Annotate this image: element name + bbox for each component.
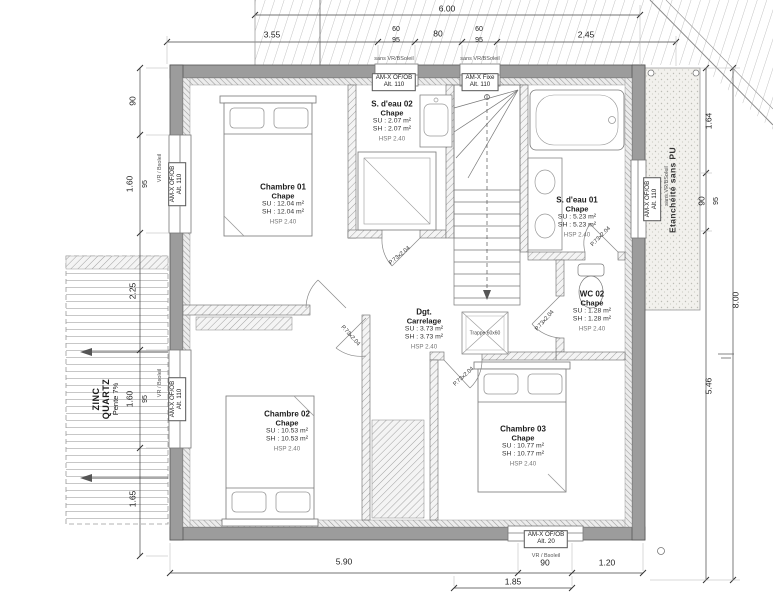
room-su: SU : 3.73 m²	[405, 326, 443, 333]
dim-left-d2: 95	[142, 395, 150, 403]
room-sh: SH : 10.77 m²	[500, 450, 546, 457]
window-label-right1: AM-X OF/OB Alt. 110	[643, 177, 661, 221]
dim-left-a: 90	[128, 96, 137, 105]
window-label-left1: AM-X OF/OB Alt. 110	[168, 162, 186, 206]
window-alt: Alt. 110	[466, 82, 495, 89]
window-alt: Alt. 110	[177, 166, 184, 202]
room-label-chambre02: Chambre 02 Chape SU : 10.53 m² SH : 10.5…	[264, 411, 310, 454]
room-finish: Chape	[573, 299, 611, 307]
dim-top-a: 3.55	[264, 30, 281, 39]
window-note-top1: sans VR/BSoleil	[374, 56, 413, 62]
dim-right-b: 90	[697, 196, 706, 205]
room-finish: Chape	[264, 419, 310, 427]
dim-top-c: 80	[433, 29, 442, 38]
room-hsp: HSP 2.40	[573, 327, 611, 334]
room-sh: SH : 2.07 m²	[371, 125, 412, 132]
trappe-label: Trappe 60x60	[470, 331, 501, 337]
room-su: SU : 10.77 m²	[500, 443, 546, 450]
room-label-chambre03: Chambre 03 Chape SU : 10.77 m² SH : 10.7…	[500, 426, 546, 469]
bathtub	[530, 90, 624, 150]
room-hsp: HSP 2.40	[500, 462, 546, 469]
room-hsp: HSP 2.40	[371, 137, 412, 144]
dim-bottom-b2: 1.85	[505, 577, 522, 586]
washbasin	[420, 95, 452, 147]
room-sh: SH : 5.23 m²	[556, 221, 597, 228]
dim-bottom-c: 1.20	[599, 558, 616, 567]
room-sh: SH : 12.04 m²	[260, 208, 306, 215]
room-hsp: HSP 2.40	[264, 447, 310, 454]
dim-left-b: 1.60	[125, 176, 134, 193]
window-label-bottom1: AM-X OF/OB Alt. 20	[524, 530, 568, 548]
room-su: SU : 2.07 m²	[371, 118, 412, 125]
dim-right-total: 8.00	[731, 292, 740, 309]
dim-top-b: 60	[392, 26, 400, 34]
floor-plan-canvas: Chambre 01 Chape SU : 12.04 m² SH : 12.0…	[0, 0, 773, 600]
waterproofing-annotation: Etanchéité sans PU	[668, 147, 677, 233]
room-sh: SH : 3.73 m²	[405, 333, 443, 340]
room-su: SU : 5.23 m²	[556, 214, 597, 221]
dim-left-c: 2.25	[128, 283, 137, 300]
window-alt: Alt. 20	[528, 539, 564, 546]
dim-right-c: 5.46	[704, 378, 713, 395]
room-finish: Chape	[260, 192, 306, 200]
dim-left-b2: 95	[142, 180, 150, 188]
staircase	[454, 85, 520, 305]
room-su: SU : 12.04 m²	[260, 201, 306, 208]
corner-post	[658, 548, 665, 555]
room-label-degagement: Dgt. Carrelage SU : 3.73 m² SH : 3.73 m²…	[405, 309, 443, 352]
dim-bottom-b: 90	[540, 558, 549, 567]
dim-top-e: 2.45	[578, 30, 595, 39]
doors	[306, 224, 618, 388]
window-label-top2: AM-X Fixe Alt. 110	[462, 73, 499, 91]
window-note-left2: VR / Bsoleil	[157, 369, 163, 397]
shower	[358, 152, 436, 230]
room-sh: SH : 1.28 m²	[573, 315, 611, 322]
dim-top-total: 6.00	[439, 4, 456, 13]
slope-label: Pente 7%	[112, 379, 120, 420]
window-label-top1: AM-X OF/OB Alt. 110	[372, 73, 416, 91]
room-finish: Chape	[556, 205, 597, 213]
zinc-roof-annotation: ZINC QUARTZ Pente 7%	[92, 379, 120, 420]
room-finish: Chape	[371, 109, 412, 117]
dim-top-d2: 95	[475, 37, 483, 45]
dim-top-b2: 95	[392, 37, 400, 45]
window-note-left1: VR / Bsoleil	[157, 154, 163, 182]
dim-left-e: 1.65	[128, 491, 137, 508]
dim-left-d: 1.60	[125, 391, 134, 408]
window-alt: Alt. 110	[177, 381, 184, 417]
room-hsp: HSP 2.40	[556, 233, 597, 240]
room-sh: SH : 10.53 m²	[264, 435, 310, 442]
room-su: SU : 1.28 m²	[573, 308, 611, 315]
level-mark	[718, 354, 734, 358]
window-alt: Alt. 110	[652, 181, 659, 217]
room-label-sdeau01: S. d'eau 01 Chape SU : 5.23 m² SH : 5.23…	[556, 197, 597, 240]
dim-top-d: 60	[475, 26, 483, 34]
window-alt: Alt. 110	[376, 82, 412, 89]
window-note-top2: sans VR/BSoleil	[460, 56, 499, 62]
room-su: SU : 10.53 m²	[264, 428, 310, 435]
room-finish: Chape	[500, 434, 546, 442]
room-finish: Carrelage	[405, 317, 443, 325]
room-label-chambre01: Chambre 01 Chape SU : 12.04 m² SH : 12.0…	[260, 184, 306, 227]
room-label-sdeau02: S. d'eau 02 Chape SU : 2.07 m² SH : 2.07…	[371, 101, 412, 144]
room-label-wc02: WC 02 Chape SU : 1.28 m² SH : 1.28 m² HS…	[573, 291, 611, 334]
window-label-left2: AM-X OF/OB Alt. 110	[168, 377, 186, 421]
room-hsp: HSP 2.40	[405, 345, 443, 352]
dim-bottom-a: 5.90	[336, 557, 353, 566]
dim-right-b2: 95	[713, 197, 721, 205]
room-hsp: HSP 2.40	[260, 220, 306, 227]
dim-right-a: 1.64	[704, 113, 713, 130]
